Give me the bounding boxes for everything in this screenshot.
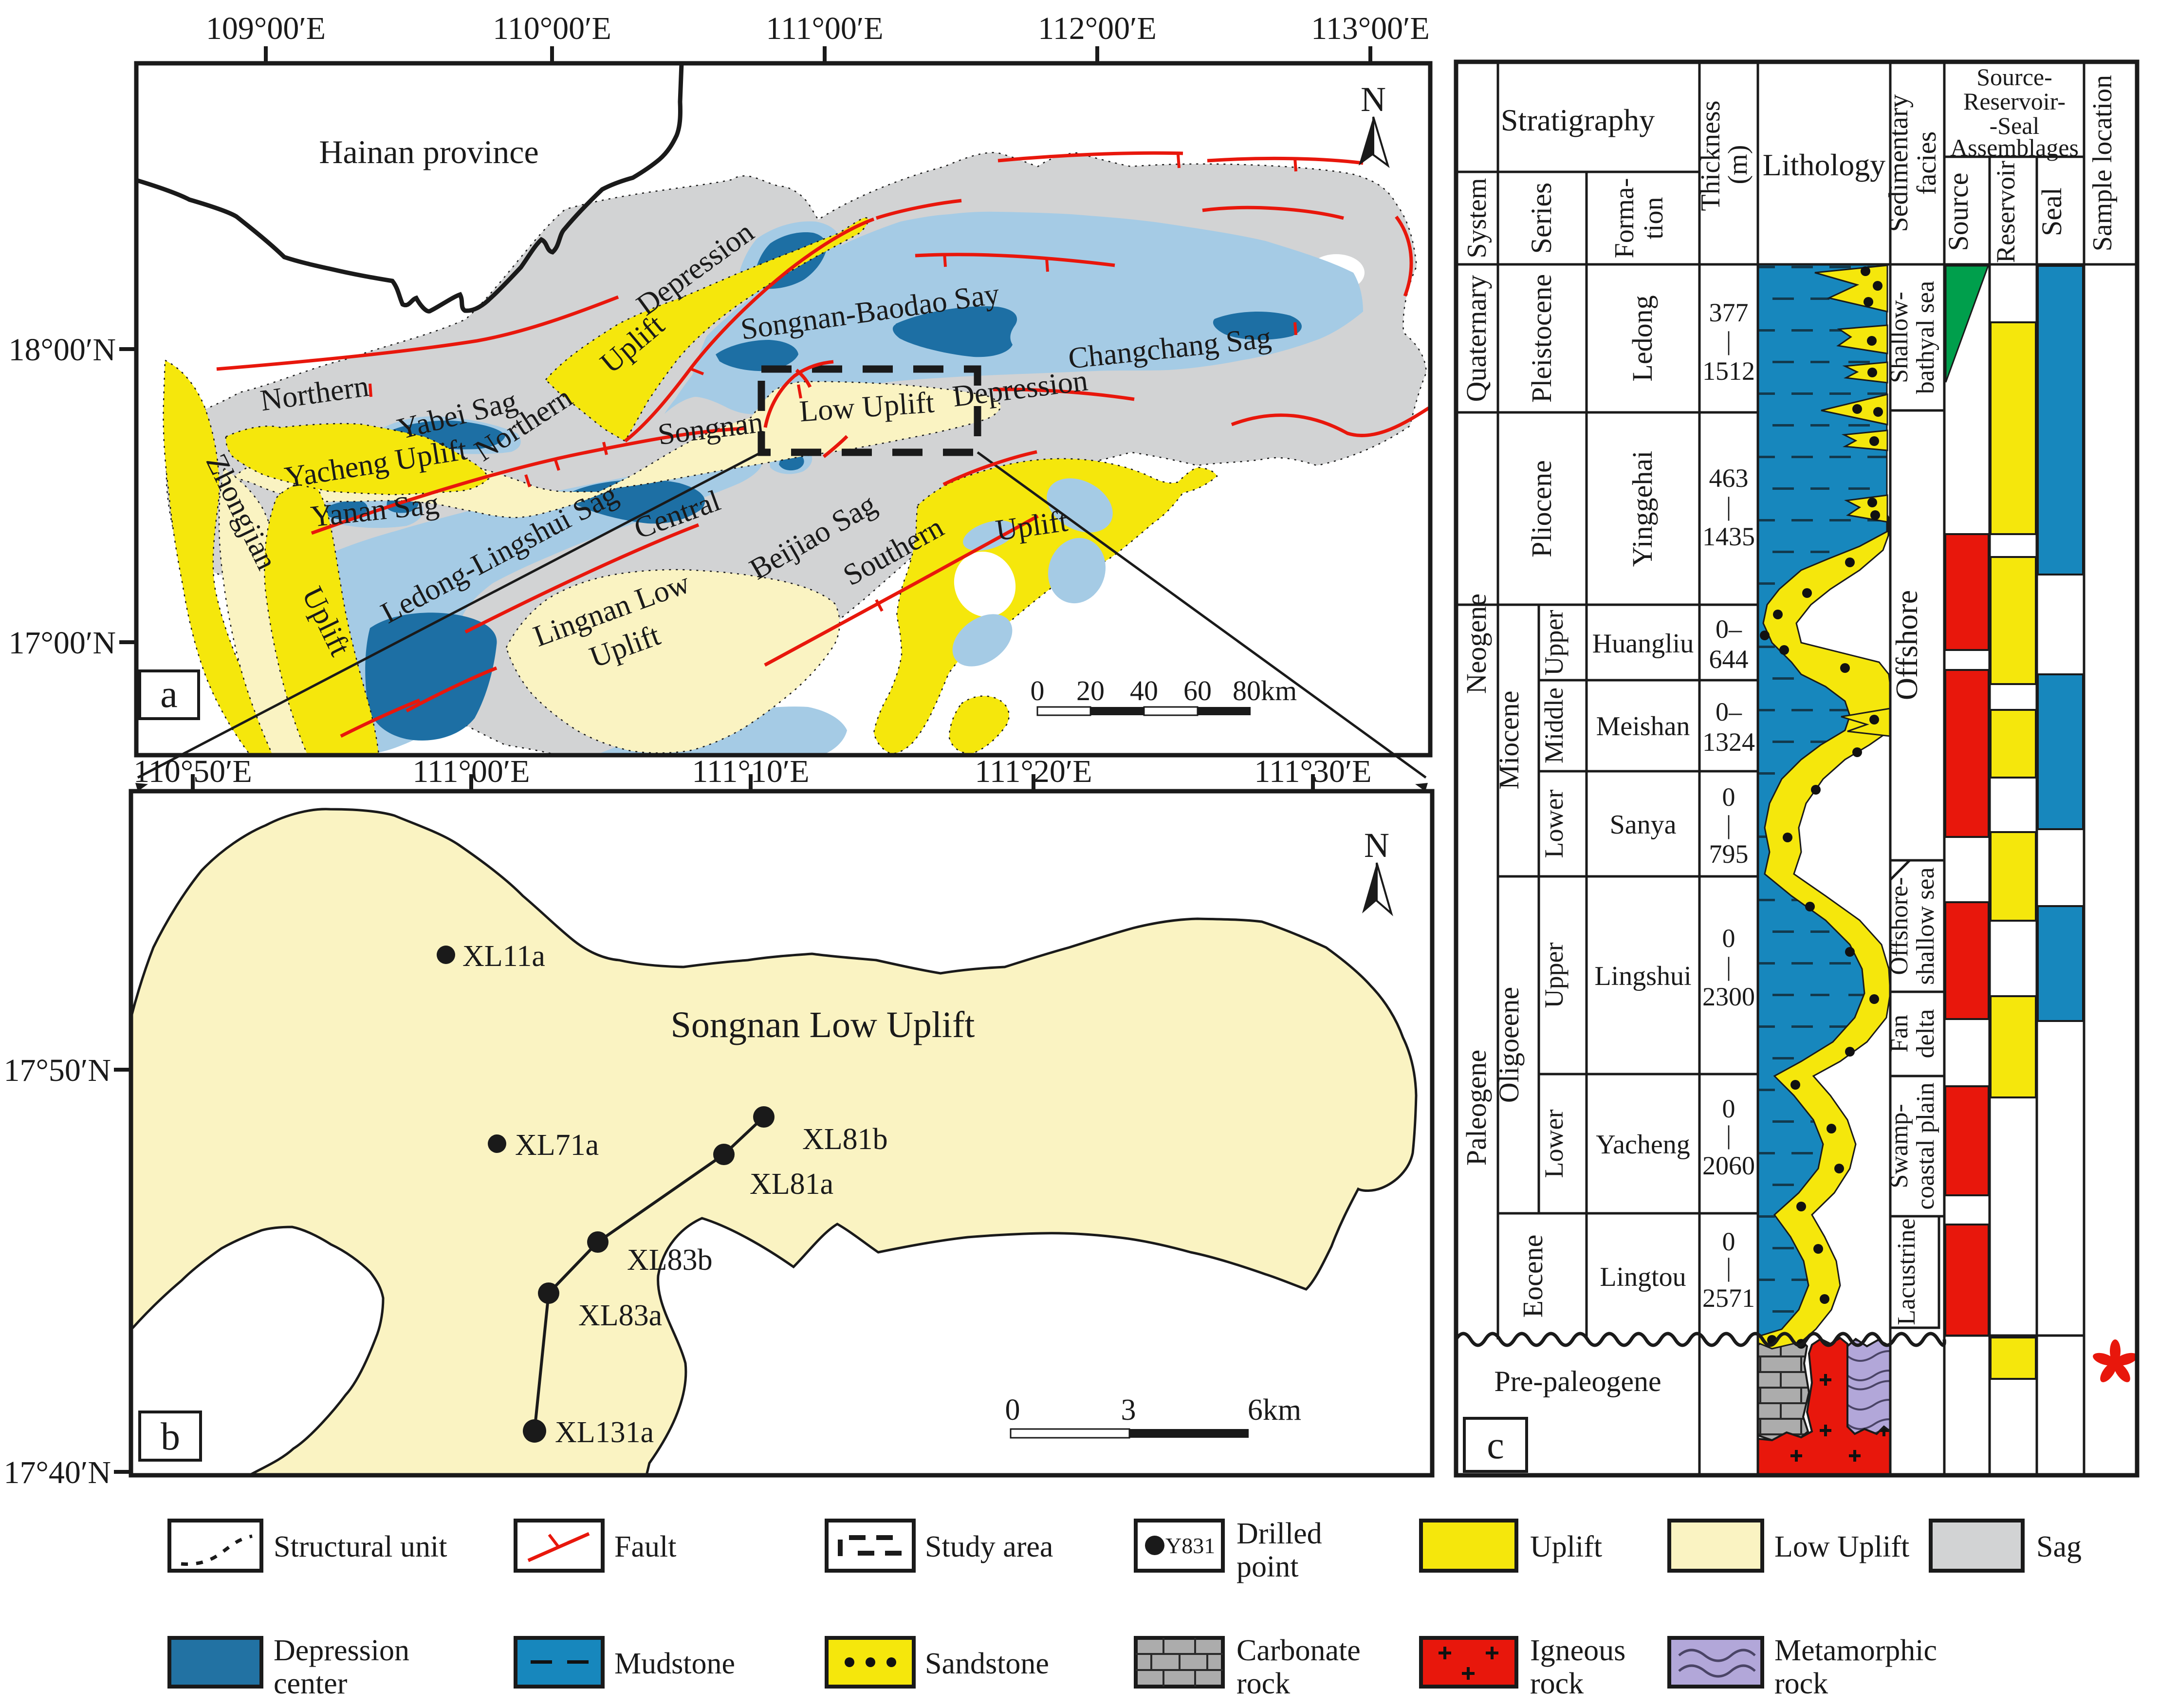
- svg-text:Lower: Lower: [1539, 1110, 1569, 1178]
- svg-text:Ledong: Ledong: [1626, 295, 1658, 381]
- svg-text:Low Uplift: Low Uplift: [1774, 1530, 1909, 1563]
- svg-text:N: N: [1364, 826, 1389, 865]
- svg-text:Uplift: Uplift: [1530, 1530, 1602, 1563]
- svg-text:Sanya: Sanya: [1610, 810, 1677, 840]
- svg-text:Offshore: Offshore: [1889, 590, 1924, 700]
- svg-text:XL83a: XL83a: [578, 1299, 662, 1332]
- svg-text:Lithology: Lithology: [1763, 148, 1885, 182]
- svg-text:Series: Series: [1525, 183, 1557, 254]
- svg-text:60: 60: [1183, 675, 1212, 706]
- svg-text:Yacheng: Yacheng: [1596, 1130, 1690, 1160]
- svg-text:Mudstone: Mudstone: [614, 1647, 735, 1680]
- svg-text:17°40′N: 17°40′N: [4, 1455, 111, 1490]
- svg-text:Upper: Upper: [1539, 610, 1569, 676]
- svg-text:System: System: [1462, 178, 1492, 259]
- svg-text:Pre-paleogene: Pre-paleogene: [1494, 1365, 1661, 1397]
- svg-text:Study area: Study area: [925, 1530, 1053, 1563]
- svg-text:Lower: Lower: [1539, 790, 1569, 858]
- svg-text:Meishan: Meishan: [1596, 711, 1690, 742]
- svg-text:Upper: Upper: [1539, 943, 1569, 1008]
- svg-text:40: 40: [1130, 675, 1158, 706]
- svg-text:Songnan Low Uplift: Songnan Low Uplift: [671, 1004, 975, 1045]
- svg-text:c: c: [1487, 1424, 1504, 1467]
- svg-text:Sandstone: Sandstone: [925, 1647, 1049, 1680]
- svg-text:Offshore-shallow sea: Offshore-shallow sea: [1885, 867, 1939, 984]
- svg-text:3: 3: [1121, 1393, 1136, 1427]
- svg-text:Stratigraphy: Stratigraphy: [1501, 103, 1655, 137]
- svg-text:Quaternary: Quaternary: [1460, 275, 1492, 402]
- svg-text:113°00′E: 113°00′E: [1311, 11, 1430, 46]
- svg-text:Pliocene: Pliocene: [1526, 460, 1557, 557]
- svg-text:XL71a: XL71a: [515, 1129, 599, 1162]
- svg-text:Oligoeene: Oligoeene: [1493, 987, 1525, 1103]
- svg-text:111°10′E: 111°10′E: [692, 754, 809, 789]
- svg-text:Lingtou: Lingtou: [1600, 1262, 1686, 1292]
- svg-text:Source: Source: [1942, 172, 1974, 251]
- svg-text:Reservoir: Reservoir: [1991, 161, 2020, 263]
- svg-text:17°00′N: 17°00′N: [9, 625, 116, 661]
- svg-text:111°00′E: 111°00′E: [766, 11, 883, 46]
- svg-text:Shallow-bathyal sea: Shallow-bathyal sea: [1885, 281, 1939, 394]
- svg-text:20: 20: [1076, 675, 1105, 706]
- svg-text:XL131a: XL131a: [555, 1416, 654, 1449]
- svg-text:Y831: Y831: [1165, 1533, 1215, 1558]
- svg-text:17°50′N: 17°50′N: [4, 1053, 111, 1088]
- svg-text:Lacustrine: Lacustrine: [1893, 1218, 1920, 1325]
- svg-text:N: N: [1361, 80, 1386, 119]
- svg-text:Structural unit: Structural unit: [274, 1530, 447, 1563]
- svg-text:Paleogene: Paleogene: [1460, 1050, 1492, 1166]
- svg-text:Neogene: Neogene: [1460, 594, 1492, 694]
- svg-text:0: 0: [1005, 1393, 1020, 1427]
- svg-text:109°00′E: 109°00′E: [206, 11, 326, 46]
- svg-text:Sag: Sag: [2036, 1530, 2082, 1563]
- svg-text:b: b: [161, 1415, 180, 1458]
- svg-text:110°50′E: 110°50′E: [133, 754, 252, 789]
- svg-text:Pleistocene: Pleistocene: [1526, 274, 1557, 403]
- svg-text:111°20′E: 111°20′E: [975, 754, 1092, 789]
- svg-text:0: 0: [1031, 675, 1045, 706]
- svg-text:110°00′E: 110°00′E: [493, 11, 611, 46]
- svg-text:(m): (m): [1723, 145, 1753, 185]
- svg-text:6km: 6km: [1248, 1393, 1301, 1427]
- svg-text:Hainan province: Hainan province: [319, 133, 538, 170]
- svg-text:111°30′E: 111°30′E: [1254, 754, 1371, 789]
- svg-text:a: a: [160, 673, 178, 716]
- svg-text:Sample location: Sample location: [2087, 75, 2118, 251]
- svg-text:Miocene: Miocene: [1493, 691, 1525, 790]
- svg-text:XL81a: XL81a: [750, 1168, 833, 1201]
- svg-text:Yinggehai: Yinggehai: [1626, 451, 1658, 567]
- svg-text:80km: 80km: [1233, 675, 1297, 706]
- svg-text:Middle: Middle: [1539, 687, 1569, 763]
- svg-text:Thickness: Thickness: [1696, 100, 1726, 211]
- svg-text:Huangliu: Huangliu: [1592, 629, 1694, 659]
- svg-text:Lingshui: Lingshui: [1594, 961, 1691, 991]
- svg-text:112°00′E: 112°00′E: [1038, 11, 1157, 46]
- svg-text:Fault: Fault: [614, 1530, 676, 1563]
- svg-text:Seal: Seal: [2036, 187, 2067, 236]
- svg-text:XL11a: XL11a: [462, 940, 545, 973]
- svg-text:Fandelta: Fandelta: [1885, 1009, 1939, 1058]
- svg-text:111°00′E: 111°00′E: [412, 754, 530, 789]
- svg-text:XL83b: XL83b: [627, 1244, 713, 1277]
- svg-text:18°00′N: 18°00′N: [9, 332, 116, 368]
- svg-text:XL81b: XL81b: [802, 1123, 888, 1156]
- svg-text:Eocene: Eocene: [1517, 1235, 1549, 1318]
